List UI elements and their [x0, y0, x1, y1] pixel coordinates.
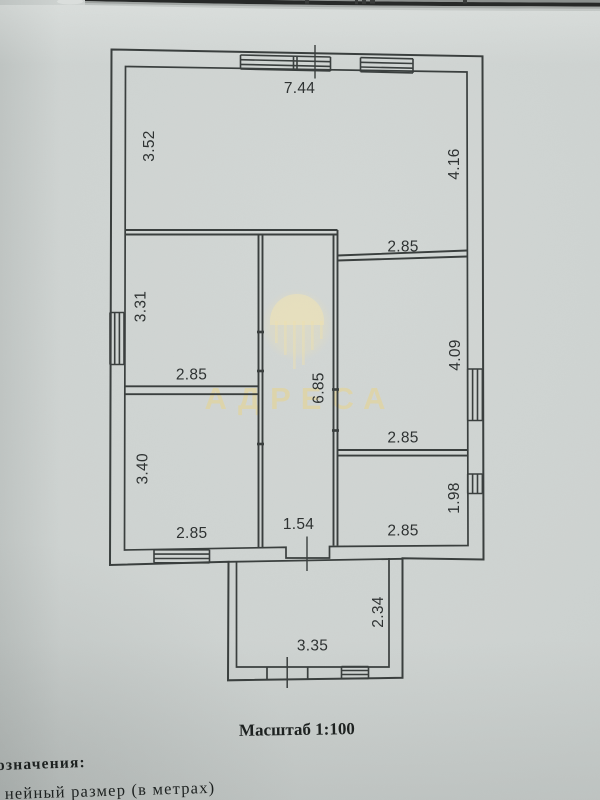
svg-text:6.85: 6.85: [310, 372, 327, 403]
svg-text:означения:: означения:: [0, 754, 86, 774]
svg-text:1.54: 1.54: [283, 516, 314, 533]
svg-text:2.85: 2.85: [387, 238, 418, 255]
svg-text:3.35: 3.35: [297, 637, 328, 654]
svg-text:1.98: 1.98: [446, 482, 463, 513]
svg-text:2.34: 2.34: [370, 596, 387, 627]
svg-text:3.52: 3.52: [141, 130, 158, 161]
svg-text:7.44: 7.44: [284, 80, 315, 97]
svg-text:3.40: 3.40: [134, 453, 151, 484]
svg-text:2.85: 2.85: [176, 366, 207, 383]
svg-text:2.85: 2.85: [176, 525, 207, 542]
svg-text:4.09: 4.09: [447, 339, 464, 370]
svg-text:Масштаб 1:100: Масштаб 1:100: [239, 719, 355, 740]
svg-text:4.16: 4.16: [446, 148, 463, 179]
svg-text:2.85: 2.85: [387, 522, 418, 539]
svg-text:3.31: 3.31: [132, 291, 149, 322]
svg-text:2.85: 2.85: [387, 429, 418, 446]
